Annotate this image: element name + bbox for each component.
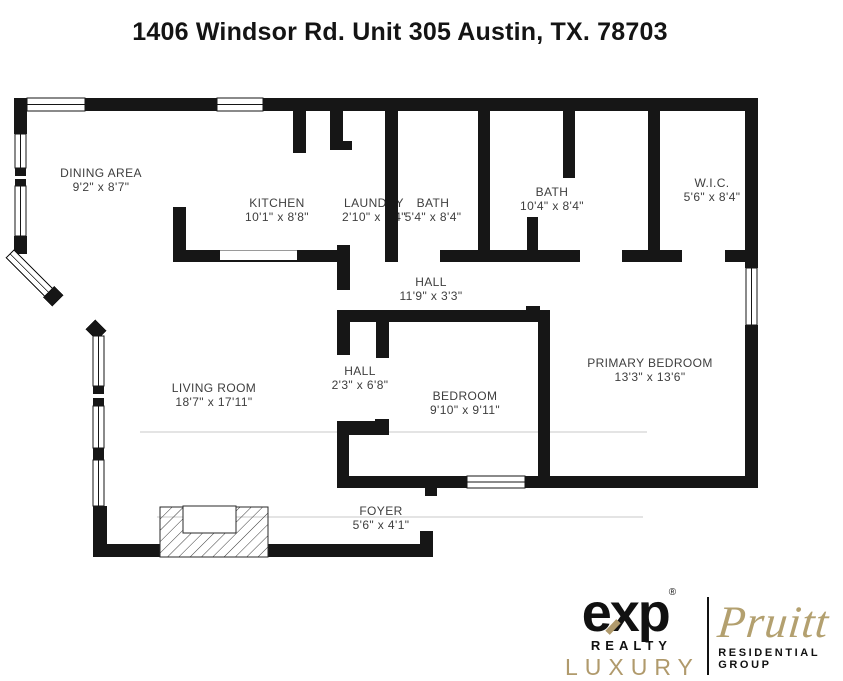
residential-group-label: RESIDENTIAL GROUP xyxy=(718,647,843,671)
room-label-bedroom: BEDROOM 9'10" x 9'11" xyxy=(430,389,500,417)
room-name: PRIMARY BEDROOM xyxy=(587,356,713,370)
brokerage-logo: exp® REALTY LUXURY Pruitt RESIDENTIAL GR… xyxy=(558,592,843,680)
room-dims: 5'6" x 4'1" xyxy=(353,518,410,532)
floor-plan-walls-drawing xyxy=(0,0,843,681)
room-dims: 13'3" x 13'6" xyxy=(587,370,713,384)
room-dims: 18'7" x 17'11" xyxy=(172,395,256,409)
room-label-hall-upper: HALL 11'9" x 3'3" xyxy=(399,275,462,303)
room-label-kitchen: KITCHEN 10'1" x 8'8" xyxy=(245,196,309,224)
room-dims: 5'6" x 8'4" xyxy=(684,190,741,204)
room-dims: 11'9" x 3'3" xyxy=(399,289,462,303)
exp-letter-e: e xyxy=(582,583,610,643)
room-dims: 10'4" x 8'4" xyxy=(520,199,584,213)
room-label-living-room: LIVING ROOM 18'7" x 17'11" xyxy=(172,381,256,409)
room-name: HALL xyxy=(399,275,462,289)
room-dims: 5'4" x 8'4" xyxy=(405,210,462,224)
room-name: BATH xyxy=(405,196,462,210)
room-label-walk-in-closet: W.I.C. 5'6" x 8'4" xyxy=(684,176,741,204)
registered-trademark: ® xyxy=(669,587,676,598)
room-label-laundry: LAUNDRY 2'10" x 8'4" xyxy=(342,196,406,224)
room-name: BATH xyxy=(520,185,584,199)
room-dims: 9'10" x 9'11" xyxy=(430,403,500,417)
room-name: LIVING ROOM xyxy=(172,381,256,395)
pruitt-script-name: Pruitt xyxy=(716,601,832,644)
room-name: FOYER xyxy=(353,504,410,518)
pruitt-logo: Pruitt RESIDENTIAL GROUP xyxy=(718,601,843,672)
luxury-label: LUXURY xyxy=(565,654,700,681)
room-name: HALL xyxy=(332,364,389,378)
room-label-primary-bedroom: PRIMARY BEDROOM 13'3" x 13'6" xyxy=(587,356,713,384)
room-name: W.I.C. xyxy=(684,176,741,190)
room-name: LAUNDRY xyxy=(342,196,406,210)
exp-letter-x: x xyxy=(610,591,638,635)
room-dims: 2'3" x 6'8" xyxy=(332,378,389,392)
room-label-hall-lower: HALL 2'3" x 6'8" xyxy=(332,364,389,392)
room-label-bath-large: BATH 10'4" x 8'4" xyxy=(520,185,584,213)
room-dims: 9'2" x 8'7" xyxy=(60,180,142,194)
room-dims: 2'10" x 8'4" xyxy=(342,210,406,224)
room-dims: 10'1" x 8'8" xyxy=(245,210,309,224)
logo-divider xyxy=(707,597,709,675)
exp-wordmark: exp® xyxy=(582,591,676,635)
room-name: DINING AREA xyxy=(60,166,142,180)
room-label-dining-area: DINING AREA 9'2" x 8'7" xyxy=(60,166,142,194)
room-name: BEDROOM xyxy=(430,389,500,403)
room-label-bath-small: BATH 5'4" x 8'4" xyxy=(405,196,462,224)
room-name: KITCHEN xyxy=(245,196,309,210)
floor-plan: DINING AREA 9'2" x 8'7" KITCHEN 10'1" x … xyxy=(0,0,843,681)
exp-letter-p: p xyxy=(638,583,669,643)
exp-luxury-logo: exp® REALTY LUXURY xyxy=(558,591,700,681)
room-label-foyer: FOYER 5'6" x 4'1" xyxy=(353,504,410,532)
